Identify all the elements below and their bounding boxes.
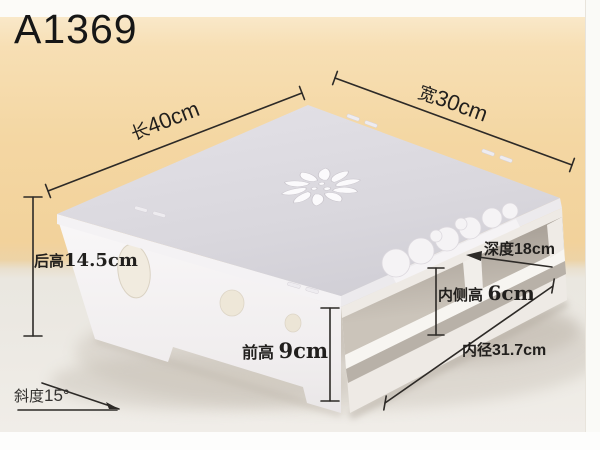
inner-diameter-dimension-label: 内径31.7cm: [462, 339, 546, 360]
frame-bottom: [0, 432, 600, 450]
slope-angle-label: 斜度15°: [14, 385, 70, 406]
back-height-label-value: 14.5cm: [64, 250, 138, 271]
product-photo: A1369 长40cm 宽30cm 后高14.5cm 深度18cm 内侧高 6c…: [0, 0, 600, 450]
depth-label-value: 18cm: [514, 241, 555, 258]
inner-side-height-label-value: 6cm: [487, 281, 534, 305]
cable-hole-medium: [220, 290, 244, 316]
back-height-dimension-label: 后高14.5cm: [34, 250, 138, 271]
inner-side-height-dimension-label: 内侧高 6cm: [438, 281, 535, 305]
slope-label-cn: 斜度: [14, 388, 44, 405]
front-height-label-cn: 前高: [242, 345, 274, 362]
inner-diameter-label-cn: 内径: [462, 342, 492, 359]
product-code-label: A1369: [14, 6, 138, 53]
frame-right: [585, 0, 600, 450]
front-height-label-value: 9cm: [278, 338, 328, 363]
product-illustration: [0, 0, 600, 450]
inner-diameter-label-value: 31.7cm: [492, 342, 546, 359]
cable-hole-small: [285, 314, 301, 332]
front-height-dimension-label: 前高 9cm: [242, 338, 328, 363]
depth-label-cn: 深度: [484, 241, 514, 258]
slope-label-value: 15°: [44, 386, 70, 405]
depth-dimension-label: 深度18cm: [484, 238, 555, 259]
back-height-label-cn: 后高: [34, 253, 64, 270]
inner-side-height-label-cn: 内侧高: [438, 287, 483, 304]
